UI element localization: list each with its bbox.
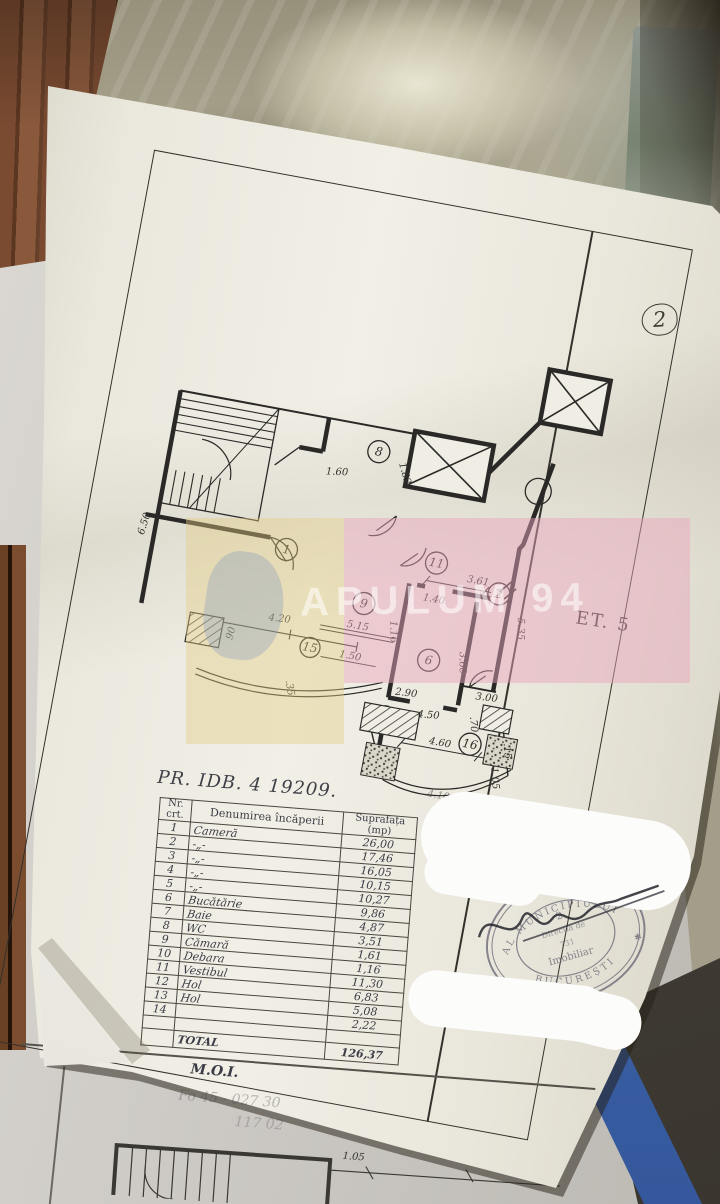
watermark-text: APULUM 94 xyxy=(300,575,590,625)
stippled-pillar xyxy=(361,742,400,781)
dim-label: 6.50 xyxy=(136,511,153,536)
dim-label: 4.50 xyxy=(416,709,441,722)
dim-label: .70 xyxy=(467,716,479,733)
dim-label: .15 xyxy=(501,743,513,760)
dim-label: 1.05 xyxy=(488,767,501,790)
room-area-table: Nr. crt. Denumirea încăperii Suprafața (… xyxy=(140,797,418,1066)
hatched-pillar xyxy=(360,702,420,740)
dim-label: 1.60 xyxy=(326,466,349,478)
table-body: 1Cameră26,002-„-17,463-„-16,054-„-10,155… xyxy=(142,819,416,1048)
dim-label: 3.00 xyxy=(475,691,499,705)
photo-of-floor-plan-document: { "page": { "circled_number": "2", "floo… xyxy=(0,0,720,1204)
room-number: 16 xyxy=(461,736,479,753)
col-header-nr: Nr. crt. xyxy=(159,798,193,822)
hatched-pillar xyxy=(479,705,513,734)
room-number: 8 xyxy=(374,444,384,459)
left-wall xyxy=(141,391,180,603)
